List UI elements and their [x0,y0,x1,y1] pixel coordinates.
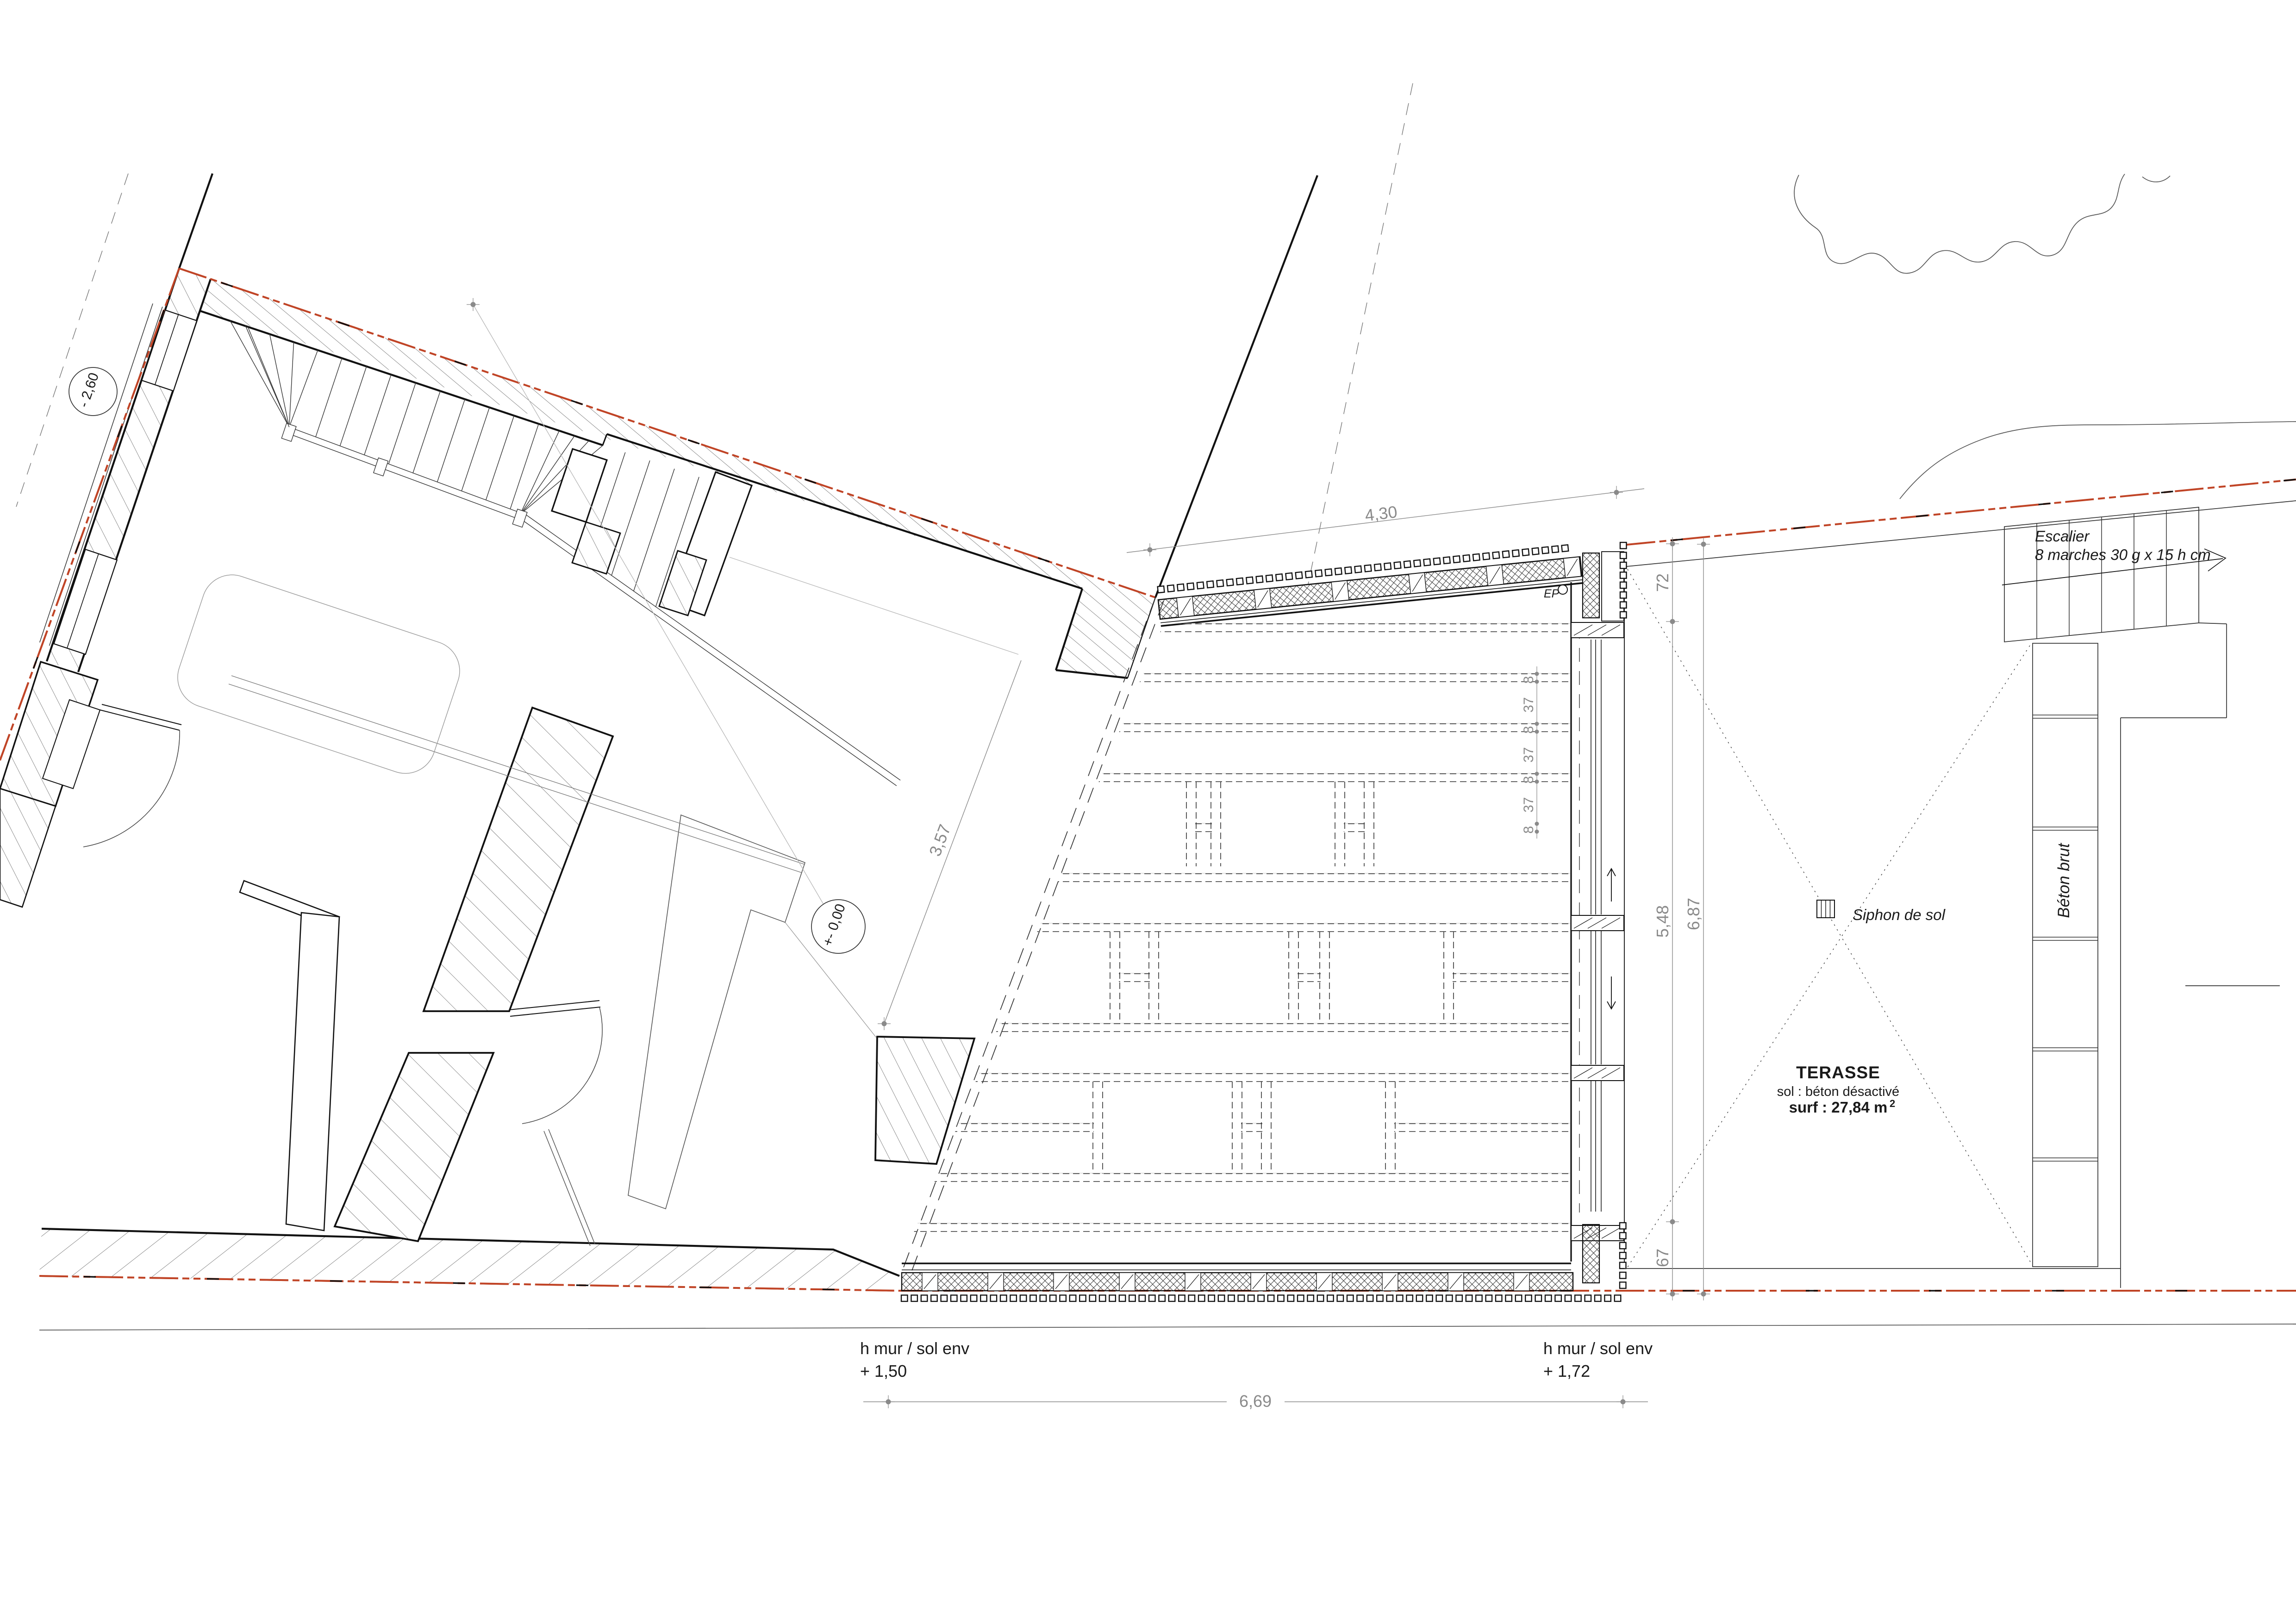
svg-text:Siphon de sol: Siphon de sol [1853,906,1946,923]
svg-text:6,87: 6,87 [1684,898,1703,930]
svg-text:+ 1,72: + 1,72 [1543,1362,1590,1380]
svg-text:h mur / sol env: h mur / sol env [1543,1339,1653,1358]
svg-text:TERASSE: TERASSE [1796,1063,1880,1082]
svg-text:sol : béton désactivé: sol : béton désactivé [1777,1084,1899,1099]
svg-text:8: 8 [1521,826,1536,834]
svg-text:5,48: 5,48 [1653,905,1672,938]
svg-text:8: 8 [1521,676,1536,684]
svg-text:surf : 27,84 m: surf : 27,84 m [1789,1099,1888,1116]
svg-text:37: 37 [1521,747,1536,762]
svg-text:8 marches 30 g x 15 h cm: 8 marches 30 g x 15 h cm [2035,546,2211,563]
svg-text:Béton brut: Béton brut [2055,843,2073,918]
svg-text:6,69: 6,69 [1239,1392,1272,1411]
svg-text:37: 37 [1521,797,1536,812]
svg-text:37: 37 [1521,697,1536,712]
svg-text:72: 72 [1653,573,1672,592]
svg-text:8: 8 [1521,726,1536,734]
svg-text:67: 67 [1653,1249,1672,1267]
svg-text:h mur / sol env: h mur / sol env [860,1339,969,1358]
svg-text:4,30: 4,30 [1364,502,1398,525]
svg-text:EP: EP [1544,587,1560,600]
svg-text:2: 2 [1890,1098,1895,1109]
svg-text:8: 8 [1521,776,1536,784]
svg-text:Escalier: Escalier [2035,528,2090,545]
svg-text:+ 1,50: + 1,50 [860,1362,907,1380]
